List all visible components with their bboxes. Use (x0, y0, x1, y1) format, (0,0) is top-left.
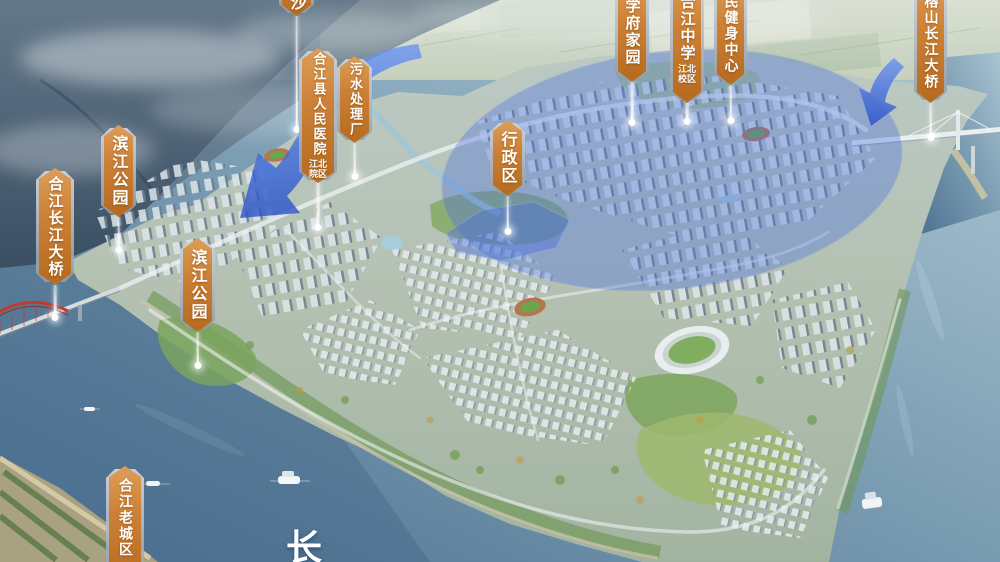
pin-banner: 污水处理厂 (339, 56, 370, 143)
map-pin-binjiang-park-1[interactable]: 滨江公园 (103, 125, 134, 217)
pin-pointer-line (353, 143, 356, 177)
pin-sublabel: 江北院区 (309, 160, 327, 180)
pin-label: 榕山长江大桥 (924, 0, 938, 90)
pin-label: 合江长江大桥 (48, 176, 63, 278)
pin-pointer-dot (115, 246, 122, 253)
pin-pointer-dot (194, 362, 201, 369)
pin-pointer-line (929, 103, 932, 138)
map-pin-old-town[interactable]: 合江老城区 (108, 466, 142, 562)
pin-banner: 沙 (281, 0, 312, 16)
map-pin-xuefu-homeland[interactable]: 学府家园 (617, 0, 647, 82)
pin-banner: 合江县人民医院 江北院区 (301, 48, 335, 183)
pin-banner: 合江长江大桥 (38, 168, 72, 285)
map-pin-hospital[interactable]: 合江县人民医院 江北院区 (301, 48, 335, 183)
map-pin-binjiang-park-2[interactable]: 滨江公园 (182, 238, 213, 332)
pin-pointer-dot (629, 119, 636, 126)
pin-pointer-dot (727, 117, 734, 124)
pin-pointer-dot (927, 134, 934, 141)
pin-pointer-dot (351, 173, 358, 180)
pin-pointer-dot (504, 228, 511, 235)
map-pin-sewage-plant[interactable]: 污水处理厂 (339, 56, 370, 143)
aerial-render-scene (0, 0, 1000, 562)
pin-label: 污水处理厂 (348, 62, 361, 137)
pin-pointer-line (506, 196, 509, 232)
pin-label: 行政区 (500, 131, 516, 185)
pin-label: 民健身中心 (724, 0, 738, 74)
pin-banner: 榕山长江大桥 (916, 0, 945, 103)
map-pin-sha[interactable]: 沙 (281, 0, 312, 16)
pin-sublabel: 江北校区 (678, 65, 696, 85)
pin-banner: 合江老城区 (108, 466, 142, 562)
pin-label: 学府家园 (625, 0, 640, 66)
pin-banner: 行政区 (492, 120, 523, 196)
pin-pointer-line (631, 82, 634, 123)
map-pin-fitness-center[interactable]: 民健身中心 (716, 0, 745, 85)
map-pin-rongshan-yangtze-bridge[interactable]: 榕山长江大桥 (916, 0, 945, 103)
pin-banner: 民健身中心 (716, 0, 745, 85)
pin-pointer-dot (52, 314, 59, 321)
pin-pointer-dot (315, 224, 322, 231)
map-pin-admin-district[interactable]: 行政区 (492, 120, 523, 196)
pin-label: 合江中学 (680, 0, 695, 62)
pin-pointer-line (196, 332, 199, 366)
pin-banner: 合江中学 江北校区 (672, 0, 702, 103)
yangtze-river-label: 长 (286, 519, 322, 562)
pin-banner: 滨江公园 (103, 125, 134, 217)
pin-label: 合江老城区 (118, 478, 132, 558)
pin-pointer-dot (684, 118, 691, 125)
pin-banner: 滨江公园 (182, 238, 213, 332)
map-pin-hejiang-middle-school[interactable]: 合江中学 江北校区 (672, 0, 702, 103)
map-pin-hejiang-yangtze-bridge[interactable]: 合江长江大桥 (38, 168, 72, 285)
city-masterplan-image: 沙 合江长江大桥 滨江公园 合江县人民医院 江北院区 污水处理厂 滨江公园 (0, 0, 1000, 562)
pin-banner: 学府家园 (617, 0, 647, 82)
pin-pointer-line (295, 16, 298, 128)
pin-label: 滨江公园 (190, 249, 206, 321)
pin-label: 沙 (289, 0, 305, 12)
pin-label: 滨江公园 (111, 135, 127, 207)
pin-pointer-line (729, 85, 732, 121)
pin-pointer-line (317, 183, 320, 228)
pin-pointer-dot (293, 126, 300, 133)
pin-label: 合江县人民医院 (312, 52, 325, 157)
